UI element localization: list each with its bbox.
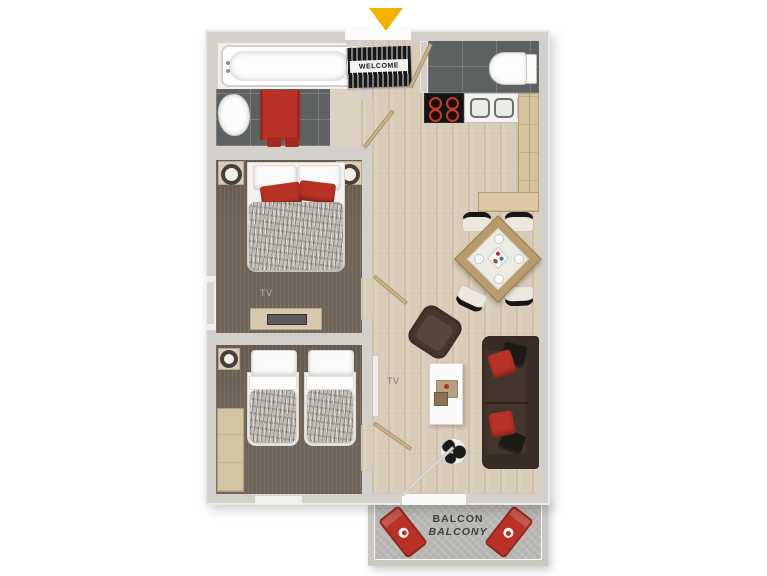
red-pillow bbox=[488, 410, 516, 438]
toilet-bowl bbox=[489, 52, 527, 85]
bathroom-stool bbox=[267, 137, 281, 147]
balcony: BALCON BALCONY bbox=[368, 498, 548, 566]
single-bed bbox=[304, 348, 356, 446]
sideboard-shelf bbox=[478, 192, 539, 212]
bathtub bbox=[221, 45, 355, 87]
bedroom1-window bbox=[205, 276, 216, 330]
pillow bbox=[308, 350, 354, 378]
living-tv-label: TV bbox=[387, 376, 400, 386]
decor-item bbox=[444, 384, 449, 389]
bath-mat bbox=[260, 90, 300, 140]
sink-basin bbox=[470, 98, 490, 118]
single-bed bbox=[247, 348, 299, 446]
bedroom1-door-opening bbox=[361, 278, 373, 320]
nightstand bbox=[218, 348, 240, 370]
food-item bbox=[492, 258, 498, 264]
welcome-mat: WELCOME bbox=[346, 46, 411, 88]
fur-blanket bbox=[307, 390, 353, 442]
television bbox=[267, 314, 307, 325]
coffee-table bbox=[429, 363, 463, 425]
plate bbox=[494, 234, 504, 244]
plate bbox=[514, 254, 524, 264]
stove bbox=[424, 93, 464, 123]
sofa bbox=[482, 336, 539, 469]
nightstand bbox=[218, 161, 244, 185]
armchair-seat bbox=[414, 313, 454, 353]
sink-basin bbox=[494, 98, 514, 118]
food-item bbox=[499, 256, 505, 262]
balcony-door-opening bbox=[400, 494, 468, 505]
fur-blanket bbox=[250, 390, 296, 442]
burner-icon bbox=[446, 109, 459, 122]
window-glass bbox=[207, 282, 214, 324]
bedroom2-door-opening bbox=[361, 425, 373, 471]
sheet-fold bbox=[306, 376, 354, 390]
red-cushion bbox=[298, 180, 336, 204]
burner-icon bbox=[429, 109, 442, 122]
bedroom2-window bbox=[255, 494, 302, 505]
dining-area bbox=[450, 210, 545, 315]
balcony-label-fr: BALCON bbox=[374, 513, 542, 525]
sheet-fold bbox=[249, 376, 297, 390]
wall-tv-panel bbox=[372, 355, 379, 417]
tv-stand bbox=[250, 308, 322, 330]
pillow bbox=[251, 350, 297, 378]
entrance-door-opening bbox=[345, 30, 411, 41]
cowhide-pouf bbox=[440, 438, 467, 465]
bathtub-faucet bbox=[226, 69, 230, 73]
lamp-icon bbox=[220, 350, 238, 368]
floor-plan-stage: BALCON BALCONY WELCOME bbox=[0, 0, 767, 576]
fur-blanket bbox=[249, 202, 343, 270]
welcome-mat-label: WELCOME bbox=[350, 59, 408, 73]
bathtub-basin bbox=[229, 51, 349, 81]
bathroom-stool bbox=[285, 137, 299, 147]
bathtub-faucet bbox=[226, 61, 230, 65]
wardrobe bbox=[217, 408, 244, 492]
lamp-icon bbox=[221, 164, 242, 185]
sofa-seam bbox=[486, 402, 528, 404]
plate bbox=[474, 254, 484, 264]
plate bbox=[494, 274, 504, 284]
bedroom-tv-label: TV bbox=[260, 288, 273, 298]
magazine bbox=[434, 392, 448, 406]
apartment-plan: WELCOME bbox=[205, 30, 550, 505]
entrance-arrow-icon bbox=[369, 8, 403, 31]
balcony-label-en: BALCONY bbox=[374, 526, 542, 538]
double-bed bbox=[247, 160, 345, 274]
